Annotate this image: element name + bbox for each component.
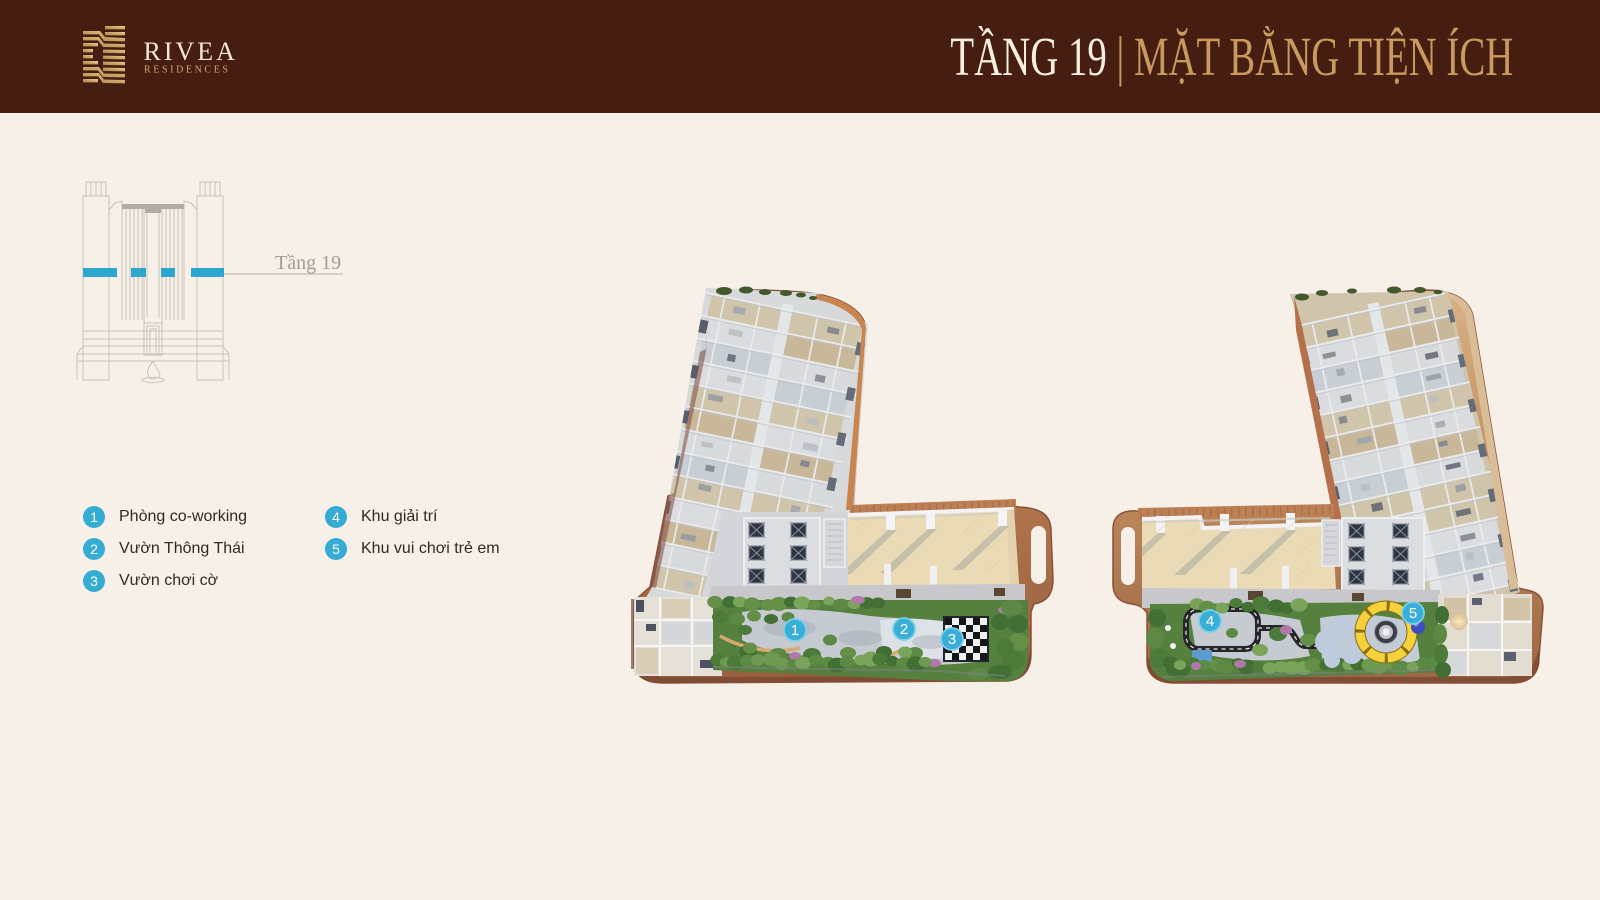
svg-text:3: 3 (948, 631, 956, 648)
svg-text:2: 2 (900, 621, 908, 638)
svg-text:5: 5 (1409, 605, 1417, 622)
svg-text:4: 4 (1206, 613, 1214, 630)
svg-text:1: 1 (791, 622, 799, 639)
